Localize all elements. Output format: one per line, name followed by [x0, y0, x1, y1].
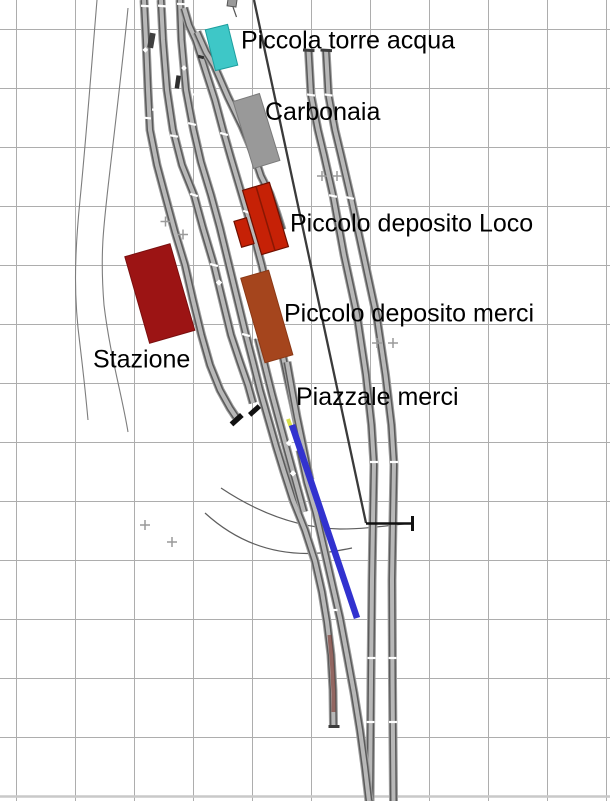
svg-text:Piccolo deposito Loco: Piccolo deposito Loco [290, 210, 533, 238]
svg-text:Piccolo deposito merci: Piccolo deposito merci [284, 300, 534, 328]
svg-text:Piazzale merci: Piazzale merci [296, 383, 459, 411]
svg-text:Stazione: Stazione [93, 346, 190, 374]
svg-text:Carbonaia: Carbonaia [265, 98, 380, 126]
svg-text:Piccola torre acqua: Piccola torre acqua [241, 27, 455, 55]
